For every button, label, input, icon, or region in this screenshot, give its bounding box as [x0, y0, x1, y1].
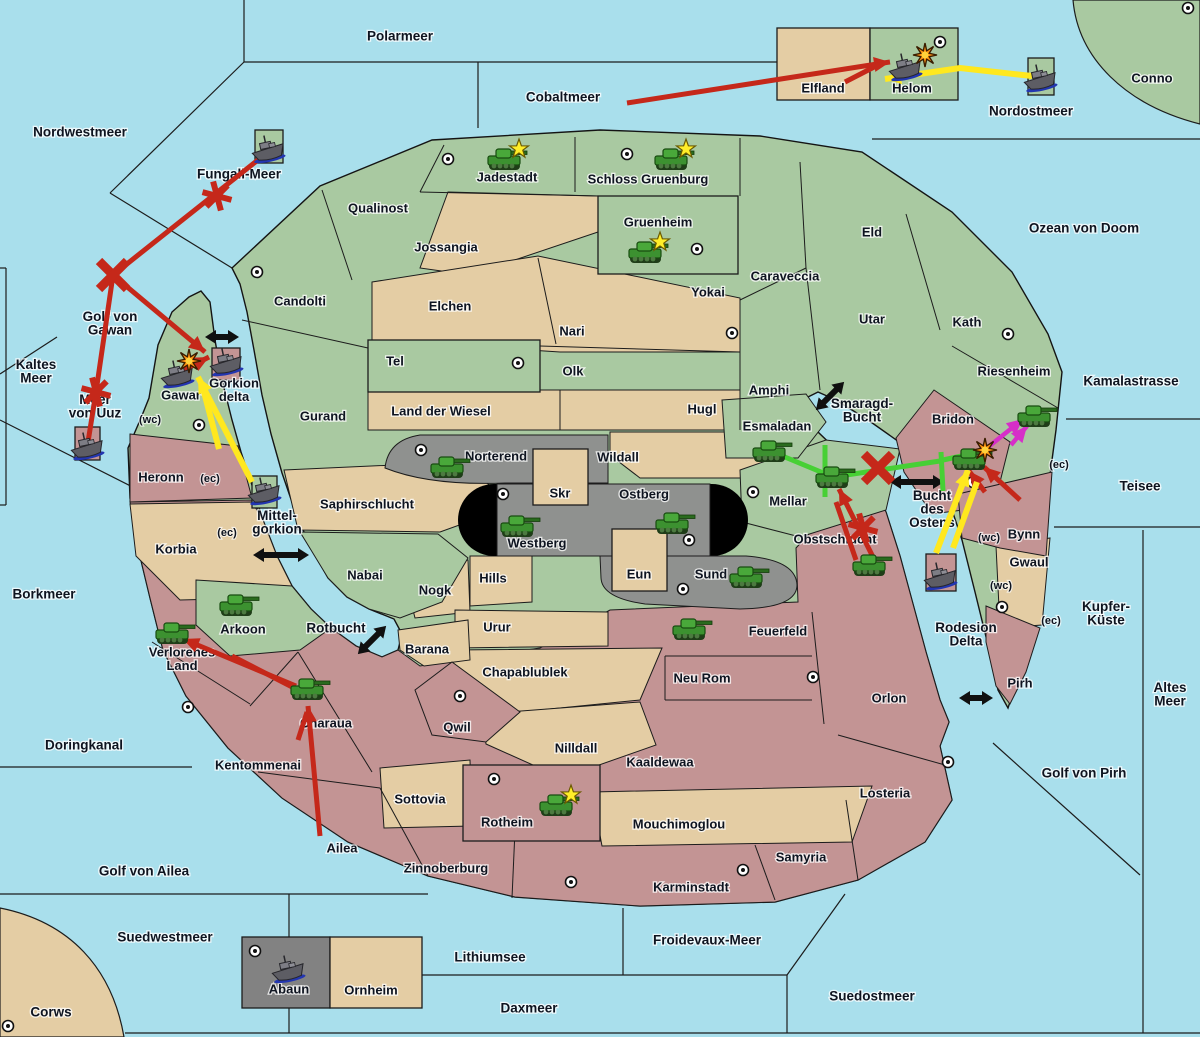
- tank-wheel: [307, 694, 312, 699]
- territory-label: Nordwestmeer: [33, 125, 128, 140]
- territory-label: Daxmeer: [500, 1001, 558, 1016]
- tank-wheel: [230, 610, 235, 615]
- label-cobaltmeer: Cobaltmeer: [526, 90, 601, 105]
- territory-label: Norterend: [465, 448, 527, 463]
- label-ostberg: Ostberg: [619, 486, 669, 501]
- tank-wheel: [562, 810, 567, 815]
- dot-inner: [253, 949, 257, 953]
- supply-dot-icon: [498, 489, 509, 500]
- territory-label: Ostberg: [619, 486, 669, 501]
- label-kupfer-k-ste: Kupfer-Küste: [1082, 599, 1130, 628]
- tank-wheel: [441, 472, 446, 477]
- ship-cabin: [269, 142, 276, 147]
- dot-inner: [730, 331, 734, 335]
- territory-label: Caraveccia: [751, 268, 820, 283]
- territory-label: Ozean von Doom: [1029, 221, 1139, 236]
- small-marker: (wc): [990, 580, 1012, 592]
- territory-label: Gruenheim: [624, 214, 693, 229]
- tank-wheel: [678, 528, 683, 533]
- tank-wheel: [313, 694, 318, 699]
- territory-label: Kamalastrasse: [1083, 374, 1179, 389]
- territory-label: Skr: [550, 485, 571, 500]
- tank-wheel: [453, 472, 458, 477]
- map-canvas: PolarmeerNordwestmeerCobaltmeerNordostme…: [0, 0, 1200, 1037]
- label-barana: Barana: [405, 641, 450, 656]
- tank-barrel: [839, 469, 855, 473]
- tank-wheel: [633, 257, 638, 262]
- tank-barrel: [696, 621, 712, 625]
- label-polarmeer: Polarmeer: [367, 29, 434, 44]
- label-arkoon: Arkoon: [220, 621, 266, 636]
- tank-wheel: [672, 528, 677, 533]
- territory-label: Amphi: [749, 382, 789, 397]
- dot-inner: [1186, 6, 1190, 10]
- label-golf-von-gawan: Golf vonGawan: [83, 309, 138, 338]
- supply-dot-icon: [250, 946, 261, 957]
- tank-wheel: [523, 531, 528, 536]
- explosion-core: [922, 52, 929, 59]
- territory-label: Rotbucht: [306, 621, 366, 636]
- tank-wheel: [757, 456, 762, 461]
- label-kentommenai: Kentommenai: [215, 757, 301, 772]
- label-bridon: Bridon: [932, 411, 974, 426]
- tank-wheel: [498, 164, 503, 169]
- tank-wheel: [435, 472, 440, 477]
- ship-cabin: [265, 484, 272, 489]
- label-borkmeer: Borkmeer: [12, 587, 76, 602]
- label-hugl: Hugl: [688, 401, 717, 416]
- tank-wheel: [224, 610, 229, 615]
- territory-label: Froidevaux-Meer: [653, 933, 762, 948]
- tank-barrel: [314, 681, 330, 685]
- tank-wheel: [242, 610, 247, 615]
- territory-box[interactable]: [598, 196, 738, 274]
- territory-label: Saphirschlucht: [320, 496, 415, 511]
- territory-label: Gurand: [300, 408, 346, 423]
- supply-dot-icon: [684, 535, 695, 546]
- territory-label: Lithiumsee: [454, 950, 526, 965]
- dot-inner: [6, 1024, 10, 1028]
- label-nordostmeer: Nordostmeer: [989, 104, 1074, 119]
- small-marker: (ec): [1041, 615, 1061, 627]
- label-tel: Tel: [386, 353, 404, 368]
- territory-label: Land der Wiesel: [391, 403, 491, 418]
- dot-inner: [492, 777, 496, 781]
- territory-label: Gawar: [161, 387, 201, 402]
- label-esmaladan: Esmaladan: [743, 418, 812, 433]
- label-karminstadt: Karminstadt: [653, 879, 730, 894]
- tank-turret: [663, 149, 678, 158]
- territory-label: Meer: [1154, 693, 1186, 708]
- dot-inner: [186, 705, 190, 709]
- tank-wheel: [301, 694, 306, 699]
- territory-label: Bynn: [1008, 526, 1041, 541]
- zone-marker-label: (wc): [978, 532, 1000, 544]
- label-olk: Olk: [563, 363, 585, 378]
- tank-barrel: [876, 557, 892, 561]
- supply-dot-icon: [738, 865, 749, 876]
- label-teisee: Teisee: [1119, 479, 1161, 494]
- dot-inner: [811, 675, 815, 679]
- territory-label: Hugl: [688, 401, 717, 416]
- label-mittel-gorkion: Mittel-gorkion: [252, 508, 302, 537]
- label-nordwestmeer: Nordwestmeer: [33, 125, 128, 140]
- label-zinnoberburg: Zinnoberburg: [404, 860, 489, 875]
- territory-label: Corws: [30, 1005, 71, 1020]
- tank-turret: [439, 457, 454, 466]
- tank-wheel: [295, 694, 300, 699]
- label-wildall: Wildall: [597, 449, 639, 464]
- tank-wheel: [869, 570, 874, 575]
- tank-wheel: [1022, 421, 1027, 426]
- tank-wheel: [447, 472, 452, 477]
- territory-label: Samyria: [776, 849, 827, 864]
- tank-barrel: [243, 597, 259, 601]
- explosion-icon: [913, 43, 937, 67]
- explosion-icon: [973, 438, 997, 462]
- territory-label: Utar: [859, 311, 885, 326]
- supply-dot-icon: [455, 691, 466, 702]
- tank-wheel: [832, 482, 837, 487]
- territory-label: Nogk: [419, 582, 452, 597]
- tank-turret: [738, 567, 753, 576]
- dot-inner: [695, 247, 699, 251]
- tank-wheel: [1028, 421, 1033, 426]
- tank-turret: [164, 623, 179, 632]
- territory-label: gorkion: [252, 521, 302, 536]
- tank-wheel: [863, 570, 868, 575]
- territory-label: Sund: [695, 566, 728, 581]
- label-nabai: Nabai: [347, 567, 382, 582]
- territory-label: Suedostmeer: [829, 989, 915, 1004]
- territory-label: Suedwestmeer: [117, 930, 213, 945]
- tank-wheel: [963, 464, 968, 469]
- territory-label: Delta: [949, 633, 983, 648]
- label-hills: Hills: [479, 570, 506, 585]
- ship-cabin: [227, 355, 234, 360]
- dot-inner: [1000, 605, 1004, 609]
- label-losteria: Losteria: [860, 785, 911, 800]
- tank-turret: [637, 242, 652, 251]
- label-land-der-wiesel: Land der Wiesel: [391, 403, 491, 418]
- label-conno: Conno: [1131, 70, 1172, 85]
- supply-dot-icon: [489, 774, 500, 785]
- label-froidevaux-meer: Froidevaux-Meer: [653, 933, 762, 948]
- small-marker: (ec): [1049, 459, 1069, 471]
- ship-cabin: [941, 569, 948, 574]
- territory-label: Zinnoberburg: [404, 860, 489, 875]
- territory-label: Eun: [627, 566, 652, 581]
- label-westberg: Westberg: [508, 535, 567, 550]
- tank-wheel: [683, 634, 688, 639]
- tank-turret: [496, 149, 511, 158]
- supply-dot-icon: [808, 672, 819, 683]
- territory-label: Bridon: [932, 411, 974, 426]
- label-ornheim: Ornheim: [344, 982, 397, 997]
- label-orlon: Orlon: [872, 690, 907, 705]
- territory-label: Polarmeer: [367, 29, 434, 44]
- tank-wheel: [492, 164, 497, 169]
- tank-wheel: [957, 464, 962, 469]
- territory-region[interactable]: [455, 610, 608, 648]
- territory-label: Nabai: [347, 567, 382, 582]
- tank-wheel: [1034, 421, 1039, 426]
- territory-label: Westberg: [508, 535, 567, 550]
- small-marker: (ec): [200, 473, 220, 485]
- tank-turret: [509, 516, 524, 525]
- tank-barrel: [753, 569, 769, 573]
- tank-wheel: [689, 634, 694, 639]
- dot-inner: [625, 152, 629, 156]
- label-caraveccia: Caraveccia: [751, 268, 820, 283]
- tank-wheel: [651, 257, 656, 262]
- label-gruenheim: Gruenheim: [624, 214, 693, 229]
- territory-label: Jossangia: [414, 239, 478, 254]
- tank-wheel: [740, 582, 745, 587]
- label-eun: Eun: [627, 566, 652, 581]
- label-candolti: Candolti: [274, 293, 326, 308]
- dot-inner: [255, 270, 259, 274]
- tank-wheel: [504, 164, 509, 169]
- territory-label: Gwaul: [1009, 554, 1048, 569]
- territory-label: Karminstadt: [653, 879, 730, 894]
- label-nari: Nari: [559, 323, 584, 338]
- label-sottovia: Sottovia: [394, 791, 446, 806]
- territory-label: Kath: [953, 314, 982, 329]
- label-riesenheim: Riesenheim: [978, 363, 1051, 378]
- dot-inner: [446, 157, 450, 161]
- tank-wheel: [752, 582, 757, 587]
- tank-wheel: [544, 810, 549, 815]
- dot-inner: [501, 492, 505, 496]
- tank-wheel: [659, 164, 664, 169]
- tank-wheel: [166, 638, 171, 643]
- zone-marker-label: (wc): [139, 414, 161, 426]
- territory-label: Rotheim: [481, 814, 533, 829]
- dot-inner: [458, 694, 462, 698]
- label-ailea: Ailea: [326, 840, 358, 855]
- tank-wheel: [1040, 421, 1045, 426]
- tank-wheel: [734, 582, 739, 587]
- territory-label: Esmaladan: [743, 418, 812, 433]
- tank-wheel: [645, 257, 650, 262]
- territory-label: Pirh: [1007, 675, 1032, 690]
- territory-label: Teisee: [1119, 479, 1161, 494]
- territory-label: Neu Rom: [673, 670, 730, 685]
- territory-label: Sottovia: [394, 791, 446, 806]
- label-lithiumsee: Lithiumsee: [454, 950, 526, 965]
- tank-barrel: [179, 625, 195, 629]
- tank-turret: [228, 595, 243, 604]
- tank-wheel: [639, 257, 644, 262]
- territory-label: Kaaldewaa: [626, 754, 694, 769]
- label-heronn: Heronn: [138, 469, 184, 484]
- supply-dot-icon: [252, 267, 263, 278]
- dot-inner: [741, 868, 745, 872]
- tank-wheel: [746, 582, 751, 587]
- supply-dot-icon: [1003, 329, 1014, 340]
- label-samyria: Samyria: [776, 849, 827, 864]
- dot-inner: [938, 40, 942, 44]
- territory-label: Olk: [563, 363, 585, 378]
- label-bynn: Bynn: [1008, 526, 1041, 541]
- supply-dot-icon: [416, 445, 427, 456]
- label-kaaldewaa: Kaaldewaa: [626, 754, 694, 769]
- supply-dot-icon: [513, 358, 524, 369]
- tank-wheel: [677, 634, 682, 639]
- territory-label: Mouchimoglou: [633, 816, 725, 831]
- label-qualinost: Qualinost: [348, 200, 409, 215]
- territory-box[interactable]: [612, 529, 667, 591]
- tank-wheel: [510, 164, 515, 169]
- ship-cabin: [289, 962, 296, 967]
- label-eld: Eld: [862, 224, 882, 239]
- territory-label: Qwil: [443, 719, 470, 734]
- territory-label: Jadestadt: [477, 169, 538, 184]
- label-elfland: Elfland: [801, 80, 844, 95]
- tank-turret: [681, 619, 696, 628]
- dot-inner: [687, 538, 691, 542]
- territory-label: Küste: [1087, 612, 1125, 627]
- label-urur: Urur: [483, 619, 510, 634]
- territory-label: Feuerfeld: [749, 623, 808, 638]
- tank-wheel: [505, 531, 510, 536]
- territory-label: Elchen: [429, 298, 472, 313]
- label-suedostmeer: Suedostmeer: [829, 989, 915, 1004]
- territory-label: Urur: [483, 619, 510, 634]
- tank-turret: [1026, 406, 1041, 415]
- tank-wheel: [875, 570, 880, 575]
- label-utar: Utar: [859, 311, 885, 326]
- territory-label: Nordostmeer: [989, 104, 1074, 119]
- label-skr: Skr: [550, 485, 571, 500]
- label-kath: Kath: [953, 314, 982, 329]
- label-pirh: Pirh: [1007, 675, 1032, 690]
- territory-label: Golf von Ailea: [99, 864, 190, 879]
- tank-barrel: [454, 459, 470, 463]
- label-kamalastrasse: Kamalastrasse: [1083, 374, 1179, 389]
- tank-wheel: [975, 464, 980, 469]
- supply-dot-icon: [1183, 3, 1194, 14]
- tank-wheel: [826, 482, 831, 487]
- tank-wheel: [556, 810, 561, 815]
- ship-cabin: [906, 60, 913, 65]
- tank-turret: [824, 467, 839, 476]
- label-rotbucht: Rotbucht: [306, 621, 366, 636]
- label-jadestadt: Jadestadt: [477, 169, 538, 184]
- dot-inner: [569, 880, 573, 884]
- label-yokai: Yokai: [691, 284, 725, 299]
- dot-inner: [1006, 332, 1010, 336]
- territory-label: Abaun: [269, 981, 310, 996]
- label-amphi: Amphi: [749, 382, 789, 397]
- tank-wheel: [511, 531, 516, 536]
- label-norterend: Norterend: [465, 448, 527, 463]
- label-gwaul: Gwaul: [1009, 554, 1048, 569]
- supply-dot-icon: [997, 602, 1008, 613]
- small-marker: (ec): [217, 527, 237, 539]
- dot-inner: [751, 490, 755, 494]
- supply-dot-icon: [443, 154, 454, 165]
- label-chapablublek: Chapablublek: [482, 664, 568, 679]
- tank-wheel: [178, 638, 183, 643]
- territory-label: Cobaltmeer: [526, 90, 601, 105]
- territory-label: Elfland: [801, 80, 844, 95]
- territory-label: Nilldall: [555, 740, 598, 755]
- territory-label: Borkmeer: [12, 587, 76, 602]
- ship-cabin: [88, 439, 95, 444]
- tank-wheel: [969, 464, 974, 469]
- small-marker: (wc): [139, 414, 161, 426]
- territory-label: Losteria: [860, 785, 911, 800]
- label-altes-meer: AltesMeer: [1153, 680, 1186, 709]
- tank-wheel: [160, 638, 165, 643]
- label-doringkanal: Doringkanal: [45, 738, 123, 753]
- territory-label: Ailea: [326, 840, 358, 855]
- tank-wheel: [236, 610, 241, 615]
- tank-wheel: [695, 634, 700, 639]
- tank-turret: [299, 679, 314, 688]
- game-map: PolarmeerNordwestmeerCobaltmeerNordostme…: [0, 0, 1200, 1037]
- territory-label: Wildall: [597, 449, 639, 464]
- tank-barrel: [776, 443, 792, 447]
- tank-turret: [664, 513, 679, 522]
- territory-label: Gawan: [88, 322, 132, 337]
- label-rotheim: Rotheim: [481, 814, 533, 829]
- territory-label: Heronn: [138, 469, 184, 484]
- territory-label: Ornheim: [344, 982, 397, 997]
- territory-label: Hills: [479, 570, 506, 585]
- label-jossangia: Jossangia: [414, 239, 478, 254]
- label-abaun: Abaun: [269, 981, 310, 996]
- tank-turret: [861, 555, 876, 564]
- label-korbia: Korbia: [155, 541, 197, 556]
- territory-label: Land: [166, 658, 197, 673]
- label-golf-von-ailea: Golf von Ailea: [99, 864, 190, 879]
- territory-label: Tel: [386, 353, 404, 368]
- tank-wheel: [838, 482, 843, 487]
- supply-dot-icon: [3, 1021, 14, 1032]
- tank-wheel: [677, 164, 682, 169]
- dot-inner: [946, 760, 950, 764]
- label-kaltes-meer: KaltesMeer: [16, 357, 57, 386]
- territory-label: Nari: [559, 323, 584, 338]
- territory-box[interactable]: [463, 765, 600, 841]
- supply-dot-icon: [935, 37, 946, 48]
- tank-wheel: [671, 164, 676, 169]
- zone-marker-label: (wc): [990, 580, 1012, 592]
- label-corws: Corws: [30, 1005, 71, 1020]
- dot-inner: [197, 423, 201, 427]
- tank-barrel: [524, 518, 540, 522]
- dot-inner: [419, 448, 423, 452]
- tank-wheel: [665, 164, 670, 169]
- label-mellar: Mellar: [769, 493, 807, 508]
- zone-marker-label: (ec): [217, 527, 237, 539]
- territory-label: Korbia: [155, 541, 197, 556]
- label-elchen: Elchen: [429, 298, 472, 313]
- label-suedwestmeer: Suedwestmeer: [117, 930, 213, 945]
- label-golf-von-pirh: Golf von Pirh: [1042, 766, 1127, 781]
- tank-wheel: [550, 810, 555, 815]
- tank-turret: [761, 441, 776, 450]
- territory-label: Meer: [20, 370, 52, 385]
- territory-label: Mellar: [769, 493, 807, 508]
- tank-wheel: [775, 456, 780, 461]
- label-qwil: Qwil: [443, 719, 470, 734]
- supply-dot-icon: [727, 328, 738, 339]
- territory-label: Qualinost: [348, 200, 409, 215]
